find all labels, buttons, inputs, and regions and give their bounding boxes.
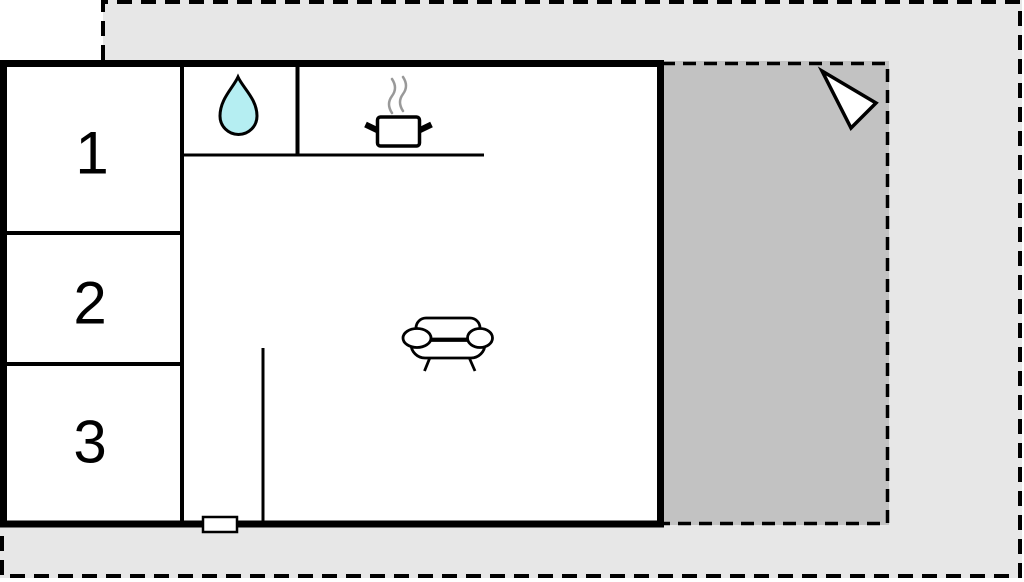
pot-body	[378, 117, 420, 146]
door-opening	[203, 517, 237, 532]
floor-plan-svg: 1 2 3	[0, 0, 1024, 582]
room-1-label: 1	[75, 120, 108, 187]
room-3-label: 3	[73, 409, 106, 476]
terrace-area	[664, 61, 889, 525]
sofa-armrest-right	[468, 329, 493, 348]
floor-plan-canvas: 1 2 3	[0, 0, 1024, 582]
room-2-label: 2	[73, 270, 106, 337]
sofa-armrest-left	[403, 329, 431, 348]
